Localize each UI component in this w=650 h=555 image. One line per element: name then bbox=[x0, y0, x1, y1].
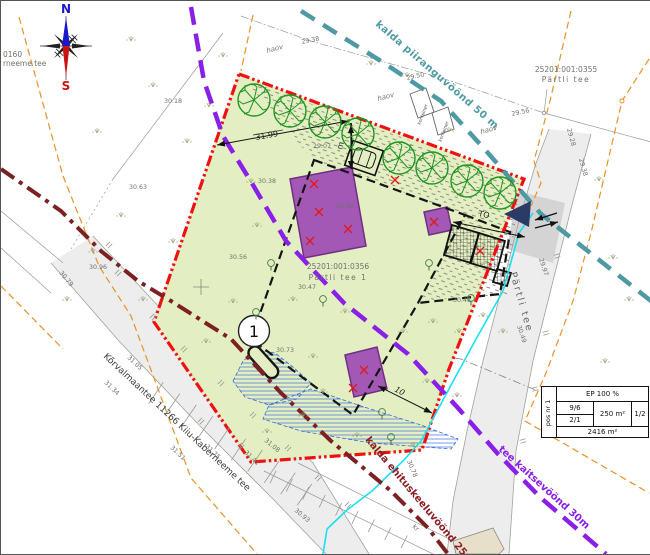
info-table-body: EP 100 % 9/6 2/1 250 m² 1/2 2416 m² bbox=[557, 387, 648, 437]
elevation-label: 30.73 bbox=[276, 347, 294, 354]
grass-tussock-icon bbox=[478, 312, 487, 317]
elevation-label: 30.48 bbox=[453, 297, 471, 304]
grass-tussock-icon bbox=[116, 212, 125, 217]
elevation-label: 31.51 bbox=[169, 444, 187, 462]
cadastral-line-north-stub bbox=[241, 15, 253, 71]
grass-tussock-icon bbox=[600, 358, 609, 363]
grass-tussock-icon bbox=[608, 254, 617, 259]
elevation-label: 30.56 bbox=[229, 254, 247, 261]
elevation-label: 29.38 bbox=[301, 35, 320, 46]
strip-tick-mark bbox=[368, 519, 374, 532]
neighbor-cadastral-code: 25201:001:0355 bbox=[535, 65, 598, 74]
grass-tussock-icon bbox=[218, 52, 227, 57]
strip-tick-mark bbox=[385, 527, 391, 540]
compass-rose: N S bbox=[40, 2, 92, 93]
cadastral-code-top-left: 0160 bbox=[3, 50, 22, 59]
elevation-label: 29.07 bbox=[313, 143, 331, 150]
elevation-label: 29.50 bbox=[406, 71, 425, 82]
grass-tussock-icon bbox=[168, 238, 177, 243]
grass-tussock-icon bbox=[62, 296, 71, 301]
elevation-label: 29.56 bbox=[511, 107, 530, 118]
info-table-mid-row: 9/6 2/1 250 m² 1/2 bbox=[557, 402, 648, 427]
elevation-label: 31.34 bbox=[103, 379, 121, 397]
yard-label: haov bbox=[479, 124, 498, 136]
info-table-ratio: 1/2 bbox=[632, 402, 648, 426]
yard-label: haov bbox=[265, 43, 284, 55]
position-marker: 1 bbox=[239, 316, 270, 347]
elevation-label: 30.78 bbox=[405, 459, 418, 478]
double-tick-mark bbox=[106, 242, 112, 248]
existing-building-large bbox=[290, 167, 366, 258]
elevation-label: 30.96 bbox=[89, 264, 107, 271]
elevation-label: 30.86 bbox=[336, 203, 354, 210]
double-tick-mark bbox=[520, 439, 527, 443]
compass-south-label: S bbox=[62, 79, 71, 93]
info-table-pos-label: pos nr 1 bbox=[544, 388, 552, 438]
compass-north-needle bbox=[62, 17, 70, 46]
neighbor-cadastral-name: Pärtli tee bbox=[542, 75, 591, 84]
elevation-label: 30.63 bbox=[129, 184, 147, 191]
cadastral-line-southwest bbox=[1, 286, 63, 349]
compass-north-label: N bbox=[61, 2, 71, 16]
strip-tick-mark bbox=[401, 536, 407, 549]
grass-tussock-icon bbox=[126, 36, 135, 41]
position-number: 1 bbox=[249, 322, 259, 341]
yard-label: haov bbox=[376, 91, 395, 103]
info-table-fraction-cells: 9/6 2/1 bbox=[557, 402, 594, 426]
grass-tussock-icon bbox=[366, 60, 375, 65]
info-table-units: 2/1 bbox=[557, 415, 593, 427]
grass-tussock-icon bbox=[624, 296, 633, 301]
existing-building-north bbox=[424, 207, 452, 235]
plot-cadastral-name: Pärtli tee 1 bbox=[309, 273, 368, 282]
double-tick-mark bbox=[543, 331, 550, 335]
site-plan-drawing: 1 0160 rneeme tee 25201:001:0355 Pärtli … bbox=[1, 1, 650, 554]
info-table-plot-area: 2416 m² bbox=[557, 427, 648, 437]
info-table: pos nr 1 EP 100 % 9/6 2/1 250 m² 1/2 241… bbox=[541, 386, 649, 438]
elevation-label: 30.38 bbox=[258, 178, 276, 185]
compass-south-needle bbox=[63, 46, 70, 77]
elevation-label: 30.18 bbox=[164, 98, 182, 105]
grass-tussock-icon bbox=[594, 176, 603, 181]
info-table-area: 250 m² bbox=[594, 402, 632, 426]
info-table-storeys: 9/6 bbox=[557, 402, 593, 415]
grass-tussock-icon bbox=[452, 392, 461, 397]
site-plan-canvas: 1 0160 rneeme tee 25201:001:0355 Pärtli … bbox=[0, 0, 650, 555]
cadastral-name-top-left: rneeme tee bbox=[3, 59, 47, 68]
grass-tussock-icon bbox=[92, 128, 101, 133]
elevation-label: 30.47 bbox=[298, 284, 316, 291]
grass-tussock-icon bbox=[148, 82, 157, 87]
info-table-top-row: EP 100 % bbox=[557, 387, 648, 402]
info-table-pos-cell: pos nr 1 bbox=[542, 387, 557, 437]
grass-tussock-icon bbox=[182, 138, 191, 143]
strip-tick-mark bbox=[352, 511, 358, 524]
plot-cadastral-code: 25201:001:0356 bbox=[307, 262, 370, 271]
